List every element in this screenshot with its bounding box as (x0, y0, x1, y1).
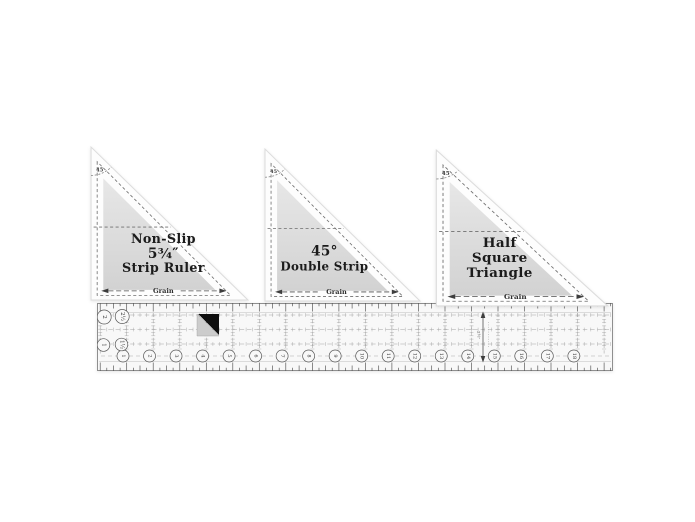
ruler-number-label: 16 (518, 353, 524, 359)
ruler-number-label: 18 (571, 353, 577, 359)
ruler-number-label: 2 (147, 354, 153, 357)
triangle-ruler-double-strip: 45 45° Double Strip Grain (262, 147, 423, 304)
ruler-number-label: 6 (253, 354, 259, 357)
ruler-number-label: 7 (279, 354, 285, 357)
triangle-ruler-strip: 45 Non-Slip 5¾″ Strip Ruler Grain (88, 145, 251, 303)
triangle-title-line: Double Strip (280, 259, 368, 273)
ruler-left-number-label: 1 (101, 343, 107, 347)
ruler-left-number-label: 2 (101, 315, 107, 319)
ruler-number-label: 4 (200, 354, 206, 357)
ruler-number-label: 17 (544, 353, 550, 359)
angle-label: 45 (442, 171, 450, 177)
ruler-number-label: 1 (120, 354, 126, 357)
ruler-number-label: 12 (412, 353, 418, 359)
ruler-number-label: 9 (332, 354, 338, 357)
ruler-number-label: 8 (306, 354, 312, 357)
product-photo: 45 Non-Slip 5¾″ Strip Ruler Grain 45 45°… (0, 0, 695, 522)
triangle-title-line: Square (472, 251, 528, 265)
triangle-gray-area (277, 180, 388, 291)
triangle-title-line: Triangle (467, 266, 533, 280)
angle-label: 45 (270, 169, 277, 175)
ruler-left-number-label: 1½ (119, 340, 126, 349)
triangle-title-line: Non-Slip (131, 231, 196, 246)
grain-label: Grain (326, 288, 347, 296)
half-square-triangle-marker (197, 314, 219, 336)
ruler-number-label: 15 (491, 353, 497, 359)
ruler-number-label: 11 (385, 353, 391, 359)
ruler-number-label: 13 (438, 353, 444, 359)
ruler-left-number-label: 2½ (119, 312, 126, 321)
triangle-title-line: 45° (311, 244, 338, 260)
ruler-number-label: 14 (465, 353, 471, 359)
ruler-number-label: 5 (226, 354, 232, 357)
strip-ruler: 12345678910111213141516171822½11½ 2½″ (97, 303, 613, 371)
grain-label: Grain (504, 292, 527, 301)
triangle-title-line: Strip Ruler (122, 260, 205, 275)
ruler-number-label: 10 (359, 353, 365, 359)
ruler-number-label: 3 (173, 354, 179, 357)
triangle-ruler-half-square: 45 Half Square Triangle Grain (433, 148, 611, 309)
angle-label: 45 (96, 167, 104, 173)
width-label: 2½″ (477, 331, 482, 339)
triangle-title-line: Half (483, 236, 518, 250)
grain-label: Grain (153, 287, 174, 295)
